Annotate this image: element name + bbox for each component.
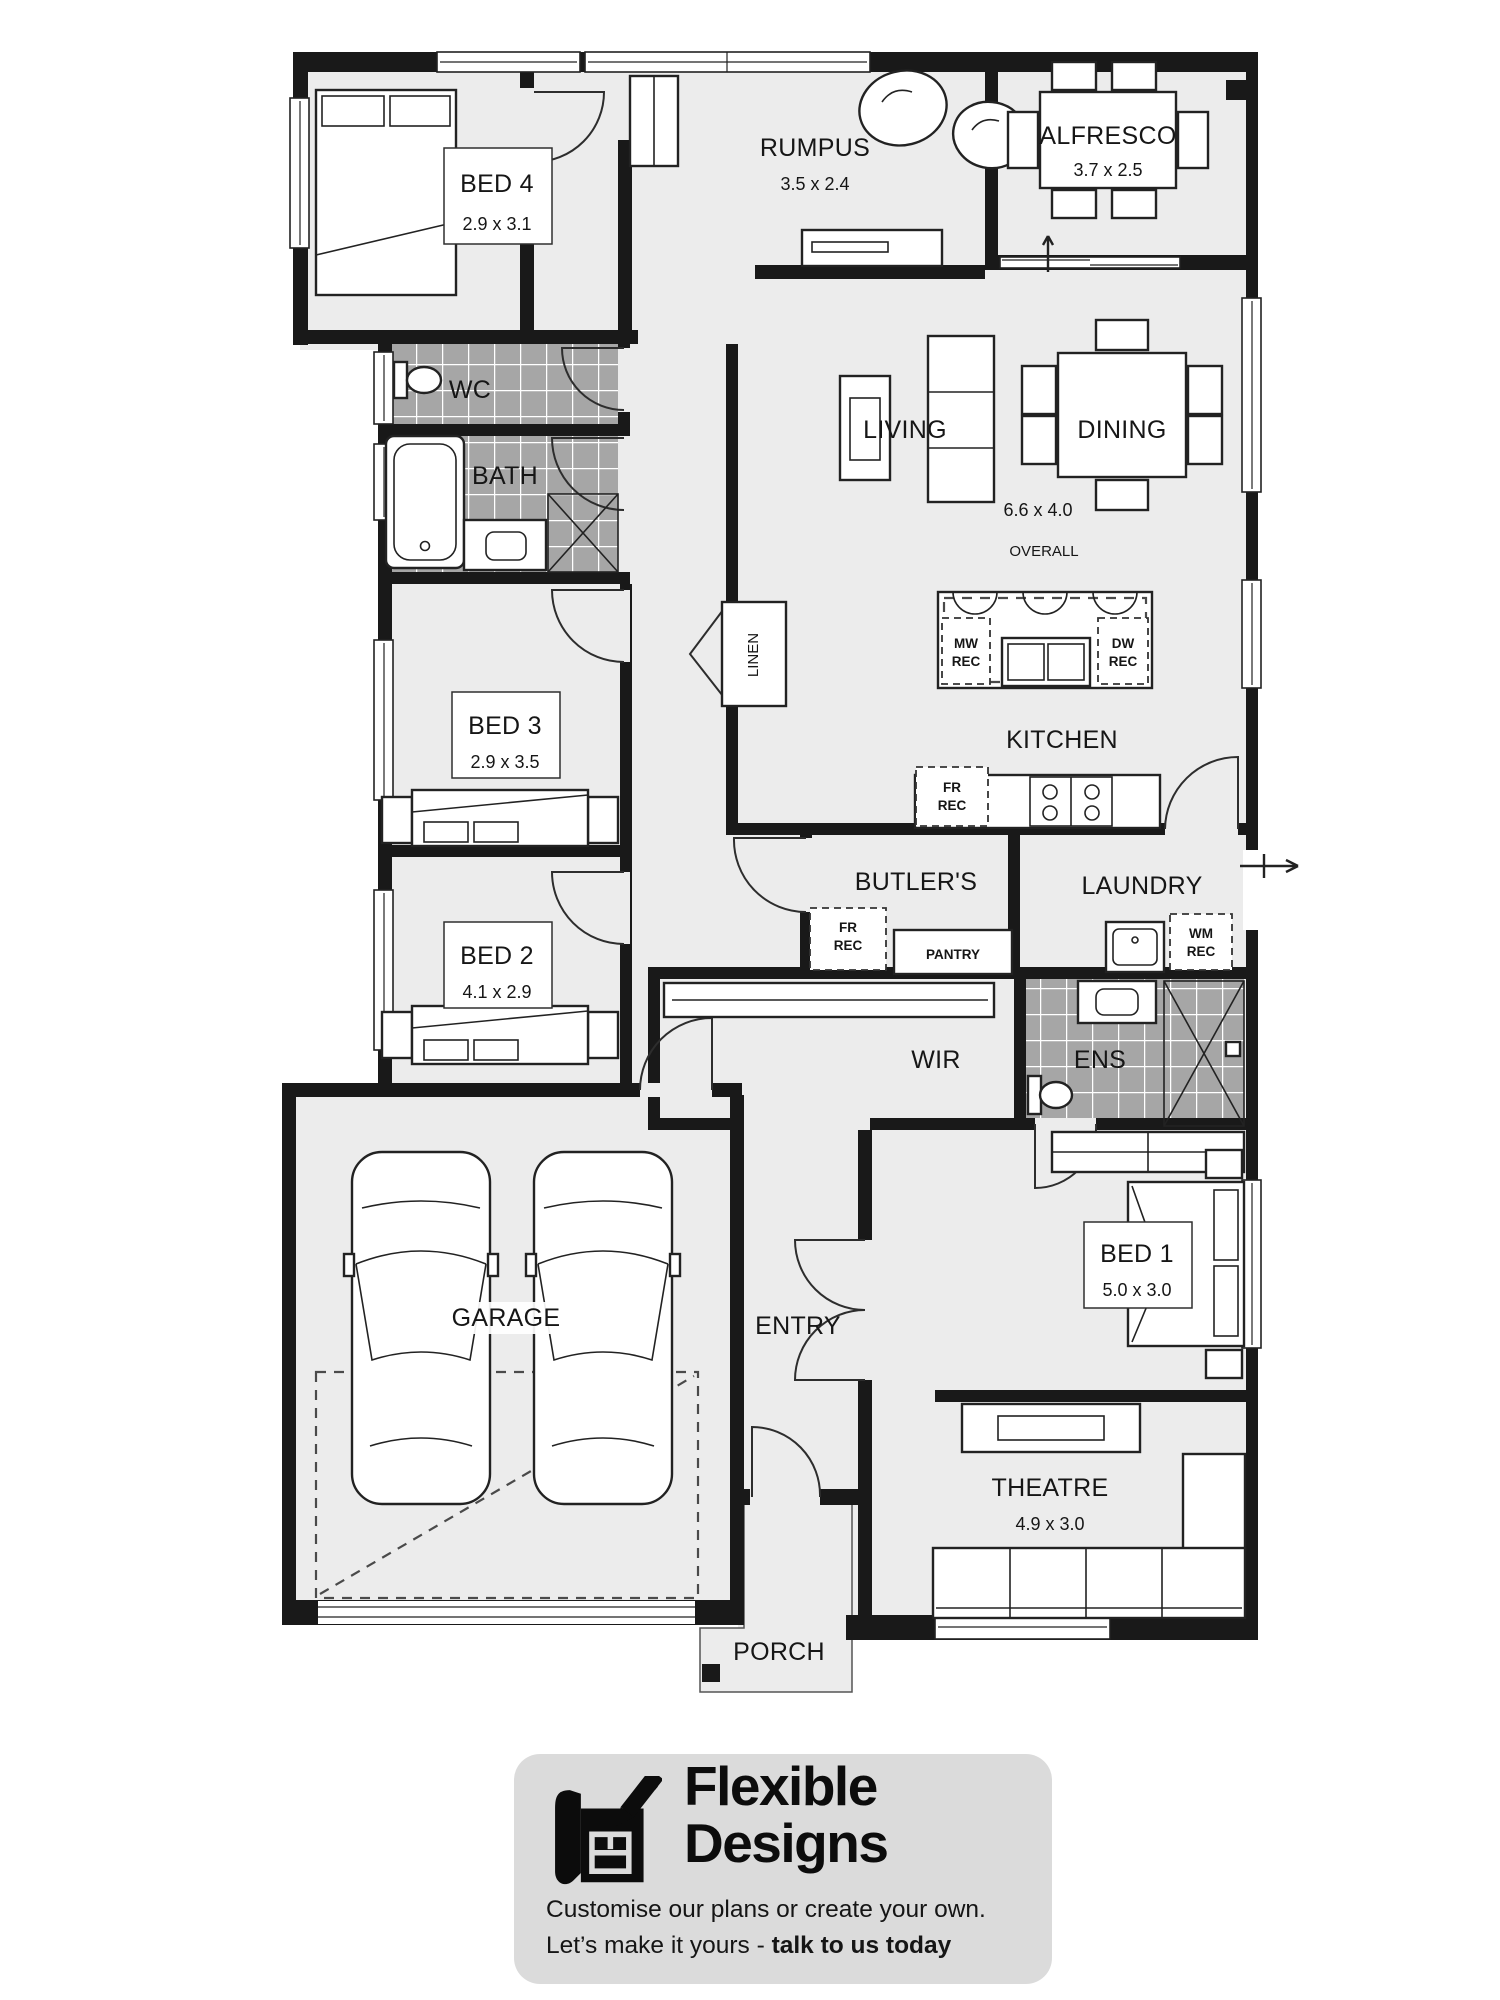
page: BED 4 2.9 x 3.1 RUMPUS 3.5 x 2.4 ALFRESC… — [0, 0, 1500, 2000]
bed-icon — [382, 1006, 618, 1064]
room-dims-bed4: 2.9 x 3.1 — [462, 214, 531, 234]
fr-rec-butlers-label-1: FR — [839, 920, 857, 935]
room-label-living: LIVING — [863, 416, 947, 444]
room-label-butlers: BUTLER'S — [855, 868, 977, 896]
room-dims-bed2: 4.1 x 2.9 — [462, 982, 531, 1002]
brand-title: Flexible Designs — [684, 1758, 887, 1872]
room-label-entry: ENTRY — [755, 1312, 841, 1340]
room-dims-theatre: 4.9 x 3.0 — [1015, 1514, 1084, 1534]
room-label-garage: GARAGE — [452, 1304, 561, 1332]
bed-icon — [382, 790, 618, 846]
room-label-bed4: BED 4 — [460, 170, 534, 198]
room-label-linen: LINEN — [745, 633, 762, 677]
vanity-icon — [464, 520, 546, 570]
wardrobe-shelf-icon — [664, 983, 994, 1017]
vanity-icon — [1078, 981, 1156, 1023]
fr-rec-butlers-label-2: REC — [834, 938, 863, 953]
room-dims-rumpus: 3.5 x 2.4 — [780, 174, 849, 194]
room-label-theatre: THEATRE — [992, 1474, 1109, 1502]
window — [1242, 298, 1261, 492]
room-label-rumpus: RUMPUS — [760, 134, 870, 162]
dw-rec-label-1: DW — [1112, 636, 1135, 651]
wm-rec-label-2: REC — [1187, 944, 1216, 959]
bathtub-icon — [386, 436, 464, 568]
room-label-kitchen: KITCHEN — [1006, 726, 1118, 754]
cupboard-icon — [630, 76, 678, 166]
wm-rec-label-1: WM — [1189, 926, 1213, 941]
window — [374, 352, 393, 424]
room-label-wc: WC — [449, 376, 491, 404]
fridge-recess — [916, 767, 988, 826]
pantry-label: PANTRY — [926, 947, 980, 962]
room-label-dining: DINING — [1077, 416, 1166, 444]
dw-recess — [1098, 618, 1148, 684]
brand-cta: Let’s make it yours - talk to us today — [546, 1932, 951, 1960]
mw-rec-label-1: MW — [954, 636, 978, 651]
fr-rec-kitchen-label-2: REC — [938, 798, 967, 813]
mw-rec-label-2: REC — [952, 654, 981, 669]
cabinet-icon — [802, 230, 942, 266]
room-dims-alfresco: 3.7 x 2.5 — [1073, 160, 1142, 180]
room-label-wir: WIR — [911, 1046, 961, 1074]
brand-title-line2: Designs — [684, 1815, 887, 1872]
window — [935, 1616, 1110, 1639]
window — [290, 98, 309, 248]
room-label-bed3: BED 3 — [468, 712, 542, 740]
room-label-bed1: BED 1 — [1100, 1240, 1174, 1268]
brand-badge: Flexible Designs Customise our plans or … — [514, 1754, 1052, 1984]
pier-marker — [702, 1664, 720, 1682]
living-dining-note: OVERALL — [1009, 543, 1078, 560]
brand-cta-prefix: Let’s make it yours - — [546, 1932, 772, 1959]
floor-plan: BED 4 2.9 x 3.1 RUMPUS 3.5 x 2.4 ALFRESC… — [0, 0, 1500, 1750]
room-label-porch: PORCH — [733, 1638, 825, 1666]
window — [1242, 580, 1261, 688]
pier-marker — [1226, 80, 1246, 100]
brand-tagline: Customise our plans or create your own. — [546, 1896, 986, 1924]
room-dims-bed1: 5.0 x 3.0 — [1102, 1280, 1171, 1300]
room-label-ens: ENS — [1074, 1046, 1126, 1074]
fr-rec-kitchen-label-1: FR — [943, 780, 961, 795]
tv-unit-icon — [962, 1404, 1140, 1452]
wm-recess — [1170, 914, 1232, 970]
brand-title-line1: Flexible — [684, 1758, 887, 1815]
room-label-alfresco: ALFRESCO — [1039, 122, 1176, 150]
dw-rec-label-2: REC — [1109, 654, 1138, 669]
brand-cta-bold: talk to us today — [772, 1932, 952, 1959]
room-label-laundry: LAUNDRY — [1081, 872, 1202, 900]
living-dining-dims: 6.6 x 4.0 — [1003, 500, 1072, 520]
room-label-bed2: BED 2 — [460, 942, 534, 970]
sink-icon — [1002, 638, 1090, 686]
laundry-trough-icon — [1106, 922, 1164, 972]
mw-recess — [942, 618, 990, 684]
bed-icon — [316, 90, 456, 295]
room-label-bath: BATH — [472, 462, 538, 490]
window — [585, 52, 870, 72]
window — [437, 52, 580, 72]
window — [374, 640, 393, 800]
room-dims-bed3: 2.9 x 3.5 — [470, 752, 539, 772]
